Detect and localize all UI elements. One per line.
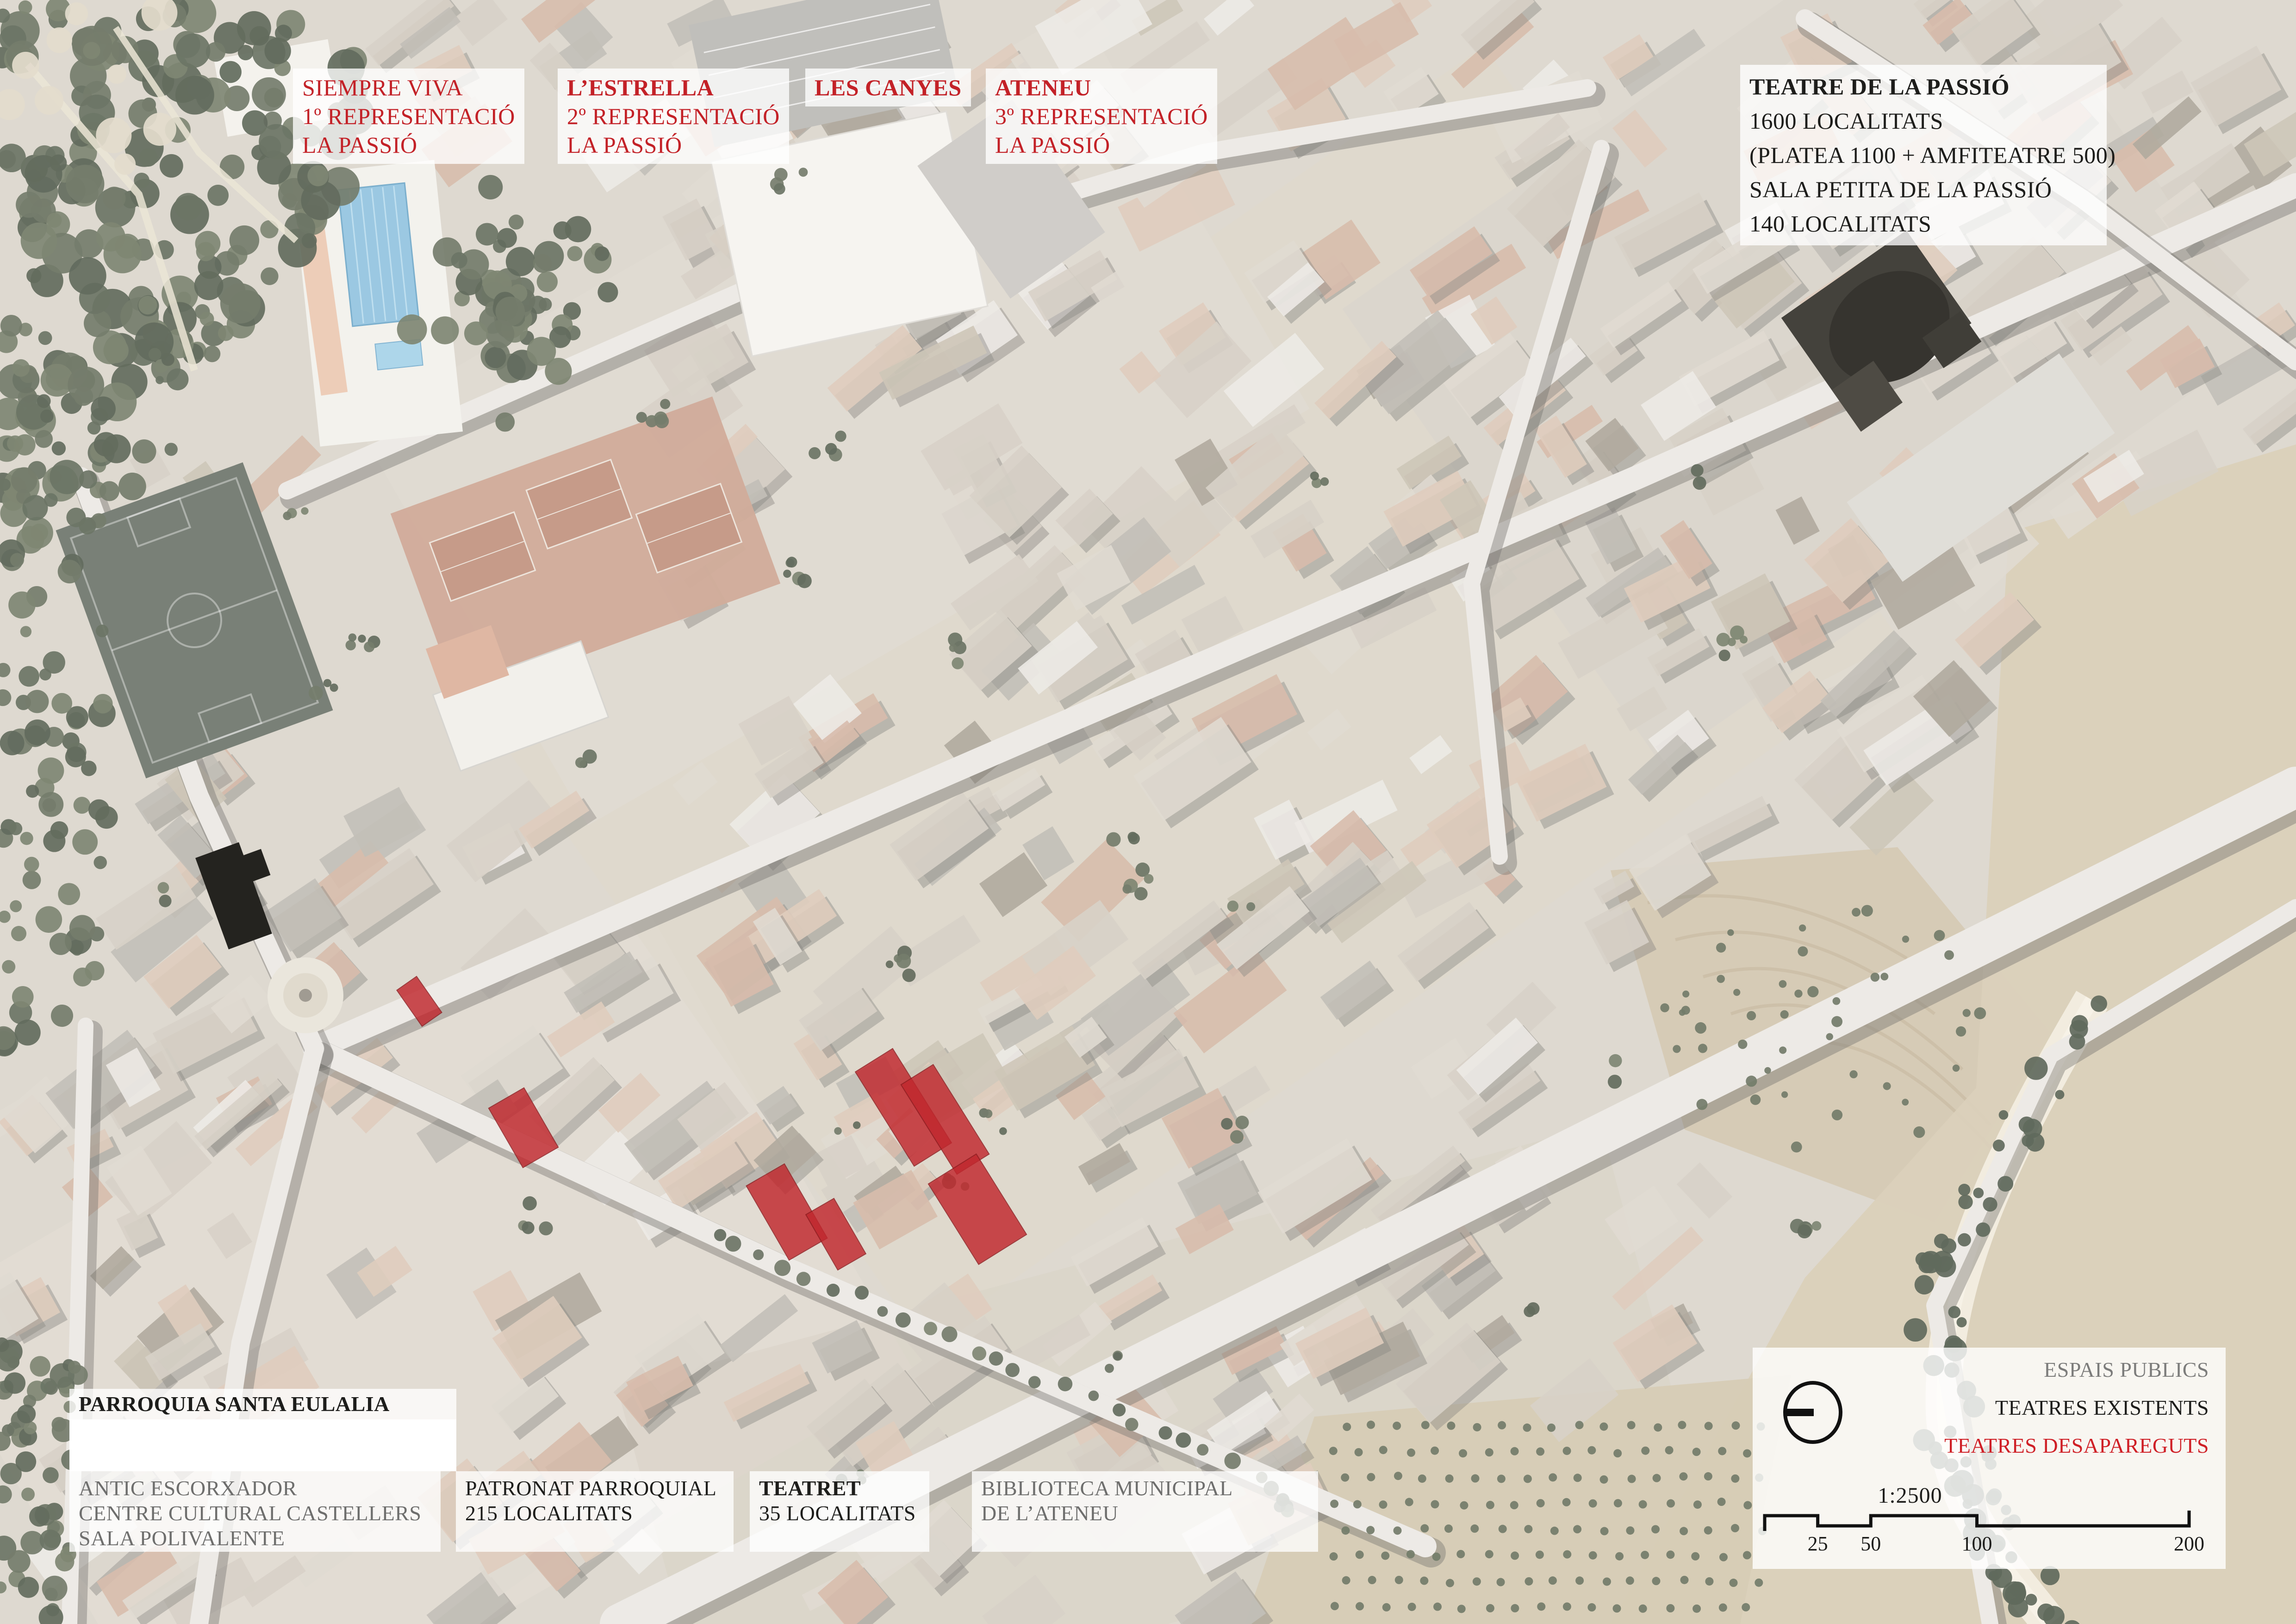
scale-ratio: 1:2500 xyxy=(1753,1483,2067,1508)
label-line: PARROQUIA SANTA EULALIA xyxy=(79,1393,447,1415)
label-patronat-parroquial: PATRONAT PARROQUIAL 215 LOCALITATS xyxy=(456,1471,734,1552)
label-line: BIBLIOTECA MUNICIPAL xyxy=(981,1476,1309,1501)
legend-teatres-existents: TEATRES EXISTENTS xyxy=(1995,1396,2209,1420)
label-line: 140 LOCALITATS xyxy=(1749,206,2097,241)
label-line: 3º REPRESENTACIÓ xyxy=(995,102,1208,131)
label-line: 1600 LOCALITATS xyxy=(1749,104,2097,138)
label-line: 1º REPRESENTACIÓ xyxy=(302,102,515,131)
label-line: TEATRET xyxy=(759,1476,920,1501)
label-line: LA PASSIÓ xyxy=(302,131,515,159)
label-ateneu: ATENEU 3º REPRESENTACIÓ LA PASSIÓ xyxy=(986,69,1217,164)
legend-teatres-desapareguts: TEATRES DESAPAREGUTS xyxy=(1944,1434,2209,1458)
label-line: SALA POLIVALENTE xyxy=(79,1526,431,1551)
label-parroquia-santa-eulalia: PARROQUIA SANTA EULALIA xyxy=(69,1389,456,1419)
white-panel xyxy=(69,1419,456,1471)
scale-tick-label: 50 xyxy=(1850,1532,1892,1555)
label-line: LA PASSIÓ xyxy=(567,131,780,159)
north-arrow-icon xyxy=(1784,1383,1841,1442)
label-line: L’ESTRELLA xyxy=(567,73,780,102)
label-line: ATENEU xyxy=(995,73,1208,102)
scale-tick-label: 25 xyxy=(1797,1532,1839,1555)
label-line: 35 LOCALITATS xyxy=(759,1501,920,1526)
scale-tick-label: 100 xyxy=(1956,1532,1998,1555)
label-line: TEATRE DE LA PASSIÓ xyxy=(1749,69,2097,104)
label-line: SIEMPRE VIVA xyxy=(302,73,515,102)
legend-espais-publics: ESPAIS PUBLICS xyxy=(2044,1358,2209,1382)
label-teatre-de-la-passio: TEATRE DE LA PASSIÓ 1600 LOCALITATS (PLA… xyxy=(1740,65,2107,245)
label-line: LES CANYES xyxy=(815,73,962,102)
label-line: LA PASSIÓ xyxy=(995,131,1208,159)
label-line: 215 LOCALITATS xyxy=(465,1501,724,1526)
label-line: SALA PETITA DE LA PASSIÓ xyxy=(1749,172,2097,206)
label-teatret: TEATRET 35 LOCALITATS xyxy=(750,1471,929,1552)
label-line: DE L’ATENEU xyxy=(981,1501,1309,1526)
aerial-theatre-map-page: { "title": "Mapa aeri dels teatres", "co… xyxy=(0,0,2296,1624)
label-line: 2º REPRESENTACIÓ xyxy=(567,102,780,131)
label-siempre-viva: SIEMPRE VIVA 1º REPRESENTACIÓ LA PASSIÓ xyxy=(293,69,524,164)
label-antic-escorxador: ANTIC ESCORXADOR CENTRE CULTURAL CASTELL… xyxy=(69,1471,441,1552)
label-les-canyes: LES CANYES xyxy=(805,69,971,106)
scale-tick-label: 200 xyxy=(2168,1532,2210,1555)
legend-panel: ESPAIS PUBLICS TEATRES EXISTENTS TEATRES… xyxy=(1753,1348,2226,1569)
label-line: PATRONAT PARROQUIAL xyxy=(465,1476,724,1501)
label-biblioteca-ateneu: BIBLIOTECA MUNICIPAL DE L’ATENEU xyxy=(972,1471,1318,1552)
label-line: (PLATEA 1100 + AMFITEATRE 500) xyxy=(1749,138,2097,172)
label-line: ANTIC ESCORXADOR xyxy=(79,1476,431,1501)
label-l-estrella: L’ESTRELLA 2º REPRESENTACIÓ LA PASSIÓ xyxy=(558,69,789,164)
label-line: CENTRE CULTURAL CASTELLERS xyxy=(79,1501,431,1526)
scale-bar xyxy=(1765,1511,2189,1531)
